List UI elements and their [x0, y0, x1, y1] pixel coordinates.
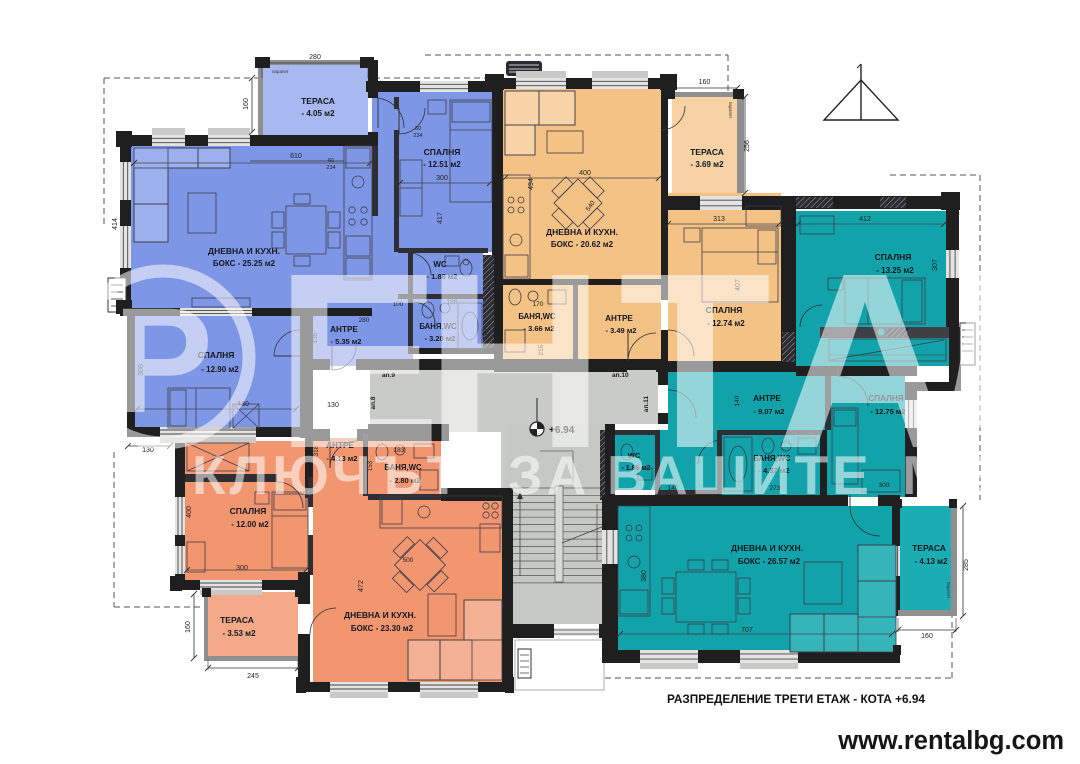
svg-text:СПАЛНЯ: СПАЛНЯ — [230, 506, 267, 516]
svg-text:160: 160 — [185, 621, 192, 633]
svg-text:ТЕРАСА: ТЕРАСА — [301, 96, 335, 106]
svg-text:ДНЕВНА И КУХН.: ДНЕВНА И КУХН. — [344, 610, 416, 620]
svg-text:парапет: парапет — [946, 582, 951, 599]
svg-text:МЕЧТИ: МЕЧТИ — [902, 444, 1080, 506]
svg-text:414: 414 — [112, 218, 119, 230]
svg-text:472: 472 — [358, 580, 365, 592]
svg-text:300: 300 — [236, 565, 248, 572]
svg-text:160: 160 — [921, 633, 933, 640]
svg-text:СПАЛНЯ: СПАЛНЯ — [424, 147, 461, 157]
svg-text:- 3.69 м2: - 3.69 м2 — [690, 160, 724, 169]
svg-text:160: 160 — [243, 98, 250, 110]
svg-text:- 12.51 м2: - 12.51 м2 — [423, 160, 461, 169]
svg-text:РАЗПРЕДЕЛЕНИЕ ТРЕТИ ЕТАЖ - КОТ: РАЗПРЕДЕЛЕНИЕ ТРЕТИ ЕТАЖ - КОТА +6.94 — [667, 692, 925, 706]
svg-text:парапет: парапет — [272, 69, 289, 74]
svg-text:БОКС - 25.25 м2: БОКС - 25.25 м2 — [213, 259, 276, 268]
svg-text:ДНЕВНА И КУХН.: ДНЕВНА И КУХН. — [731, 543, 803, 553]
svg-text:Р: Р — [113, 276, 213, 444]
svg-text:www.rentalbg.com: www.rentalbg.com — [837, 727, 1064, 755]
svg-text:- 4.13 м2: - 4.13 м2 — [914, 557, 948, 566]
svg-text:КЛЮЧЪТ: КЛЮЧЪТ — [192, 444, 464, 506]
svg-text:парапет: парапет — [728, 102, 733, 119]
svg-text:БОКС - 26.57 м2: БОКС - 26.57 м2 — [738, 557, 801, 566]
svg-text:ЗА: ЗА — [508, 444, 590, 506]
svg-text:285: 285 — [963, 559, 970, 571]
svg-text:ТЕРАСА: ТЕРАСА — [690, 147, 724, 157]
svg-text:ТЕРАСА: ТЕРАСА — [220, 615, 254, 625]
svg-text:610: 610 — [290, 153, 302, 160]
svg-text:234: 234 — [326, 165, 335, 171]
svg-text:400: 400 — [579, 170, 591, 177]
svg-text:ДНЕВНА И КУХН.: ДНЕВНА И КУХН. — [208, 246, 280, 256]
svg-text:- 3.53 м2: - 3.53 м2 — [222, 629, 256, 638]
svg-text:280: 280 — [309, 54, 321, 61]
svg-text:494: 494 — [528, 178, 535, 190]
svg-text:БОКС - 23.30 м2: БОКС - 23.30 м2 — [351, 624, 414, 633]
svg-text:234: 234 — [413, 133, 422, 139]
svg-text:380: 380 — [641, 570, 648, 582]
svg-text:ВАШИТЕ: ВАШИТЕ — [607, 444, 873, 506]
svg-text:ТЕРАСА: ТЕРАСА — [912, 543, 946, 553]
svg-text:245: 245 — [247, 673, 259, 680]
svg-text:500: 500 — [403, 557, 414, 564]
svg-text:60: 60 — [415, 126, 421, 132]
svg-text:- 12.00 м2: - 12.00 м2 — [231, 520, 269, 529]
svg-text:160: 160 — [699, 79, 711, 86]
svg-text:707: 707 — [741, 627, 753, 634]
svg-text:400: 400 — [186, 506, 193, 518]
svg-text:300: 300 — [436, 175, 448, 182]
svg-text:- 4.05 м2: - 4.05 м2 — [301, 109, 335, 118]
